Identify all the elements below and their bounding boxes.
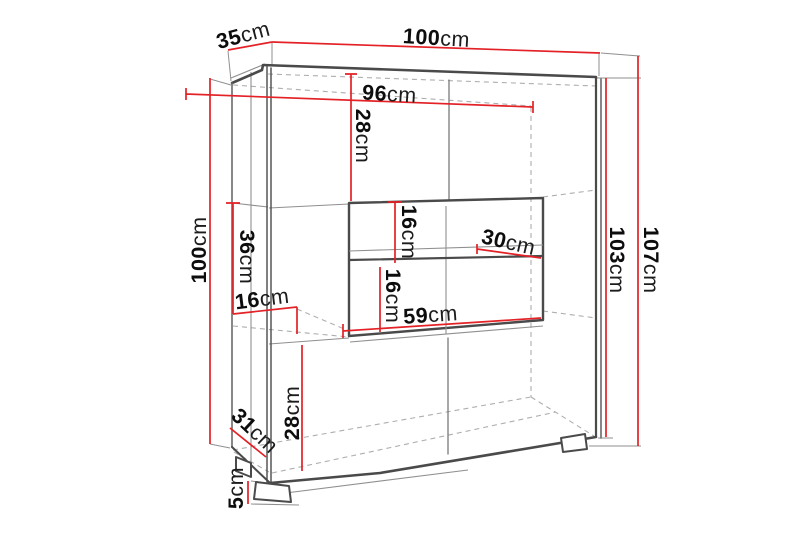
hidden-left-shelf-edge-2	[297, 309, 349, 331]
dim-label-middle-section-height: 36cm	[235, 230, 259, 285]
hidden-joint-right-top	[543, 190, 596, 197]
joint-left-of-niche-top	[269, 204, 349, 208]
ext-top-depth-left	[228, 51, 231, 81]
dim-label-niche-width: 59cm	[402, 301, 458, 329]
hidden-joint-right-bottom	[543, 311, 596, 318]
dim-label-top-depth: 35cm	[214, 17, 273, 54]
dimension-labels: 35cm 100cm 96cm 28cm 100cm 36cm 16cm 16c…	[187, 17, 663, 509]
dim-label-niche-upper-height: 16cm	[397, 205, 421, 260]
dim-label-body-height: 103cm	[605, 226, 629, 293]
dim-label-niche-lower-height: 16cm	[381, 269, 405, 324]
ext-total-height-top	[601, 53, 640, 56]
furniture-dimension-diagram: 35cm 100cm 96cm 28cm 100cm 36cm 16cm 16c…	[0, 0, 800, 533]
dim-label-left-height: 100cm	[187, 216, 211, 283]
dim-label-total-height: 107cm	[639, 226, 663, 293]
joint-left-of-niche-bottom	[269, 338, 349, 344]
ext-foot-bottom	[251, 504, 299, 505]
cabinet-bottom-edge	[270, 437, 596, 483]
hidden-left-shelf-edge-1	[233, 326, 349, 337]
cabinet-top-edge	[232, 65, 596, 83]
dim-label-foot-height: 5cm	[224, 467, 248, 509]
dim-label-interior-width: 96cm	[361, 80, 417, 107]
foot-front-left	[254, 482, 291, 502]
dim-label-lower-section-height: 28cm	[280, 386, 304, 441]
ext-left-height-top	[210, 79, 231, 85]
diagram-canvas: 35cm 100cm 96cm 28cm 100cm 36cm 16cm 16c…	[0, 0, 800, 533]
foot-front-right	[561, 434, 587, 452]
hidden-bottom-right-edge	[531, 397, 594, 436]
dim-label-shelf-depth: 30cm	[479, 224, 538, 260]
ext-left-height-bottom	[210, 444, 230, 448]
dim-label-top-width: 100cm	[402, 24, 470, 52]
hidden-floor-edge	[272, 412, 556, 473]
dim-label-upper-section-height: 28cm	[351, 109, 375, 164]
dim-label-side-shelf-depth: 16cm	[234, 284, 291, 314]
